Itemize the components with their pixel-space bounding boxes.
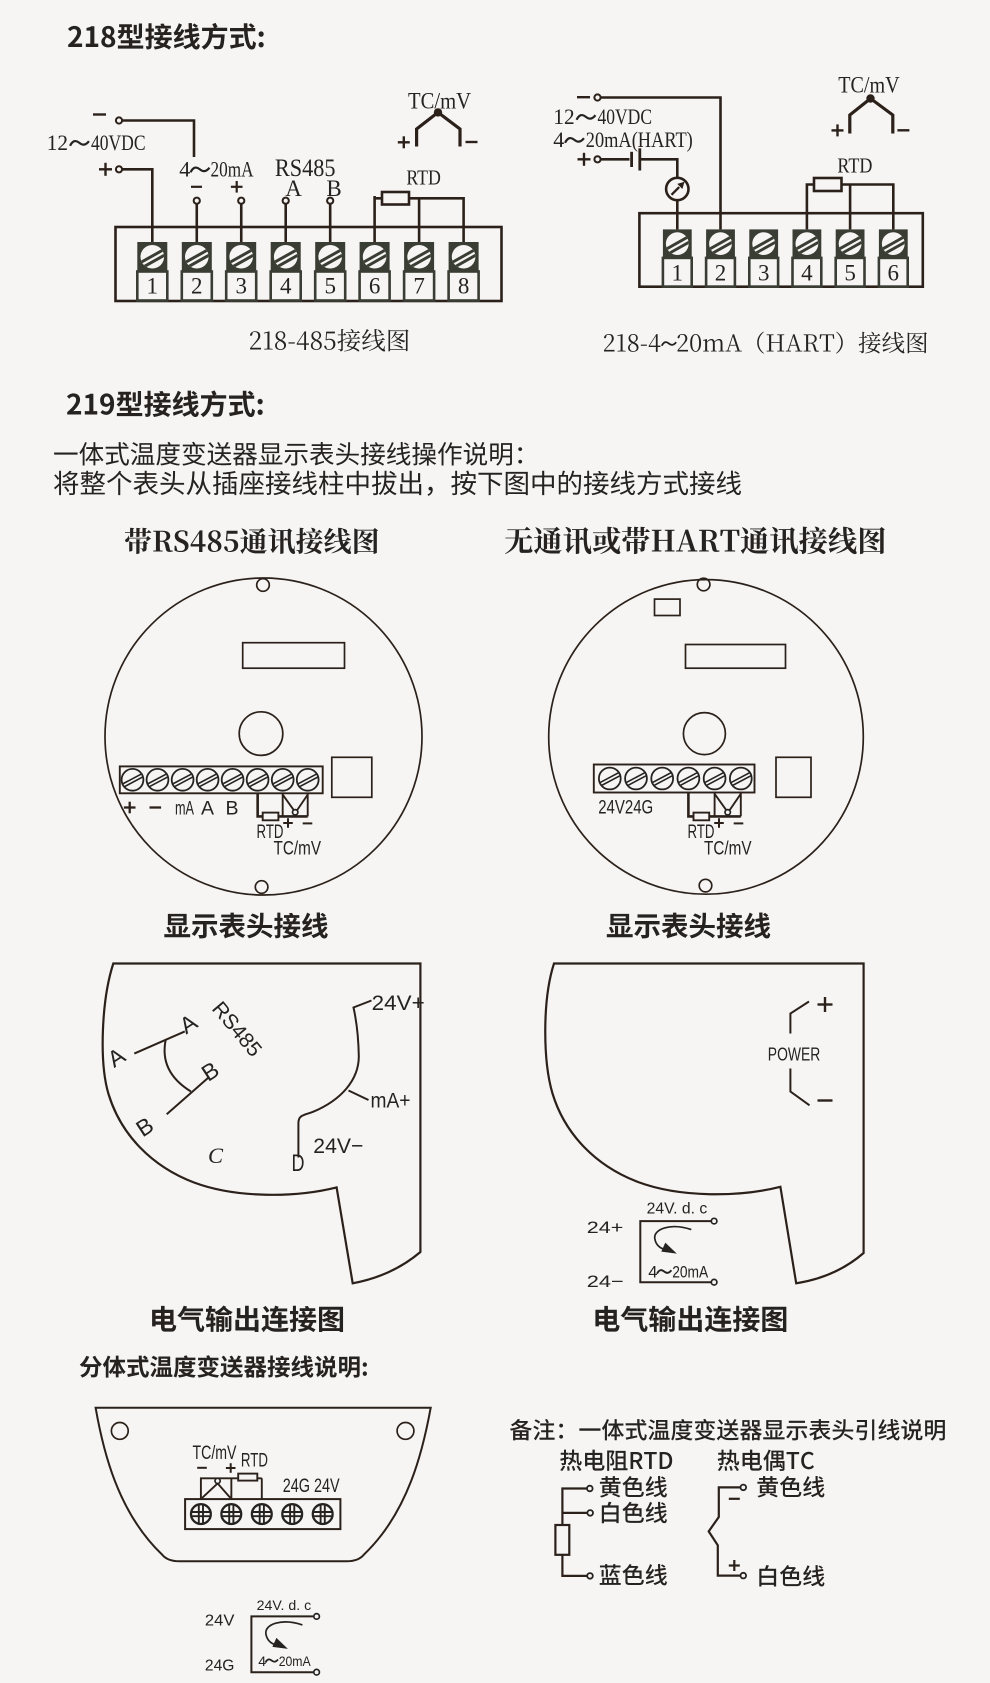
svg-text:TC/mV: TC/mV	[193, 1442, 237, 1464]
svg-text:24V: 24V	[205, 1613, 235, 1630]
svg-text:TC/mV: TC/mV	[274, 839, 322, 860]
svg-text:4: 4	[179, 157, 190, 182]
svg-text:24−: 24−	[587, 1272, 624, 1291]
svg-text:40VDC: 40VDC	[91, 130, 146, 155]
svg-text:RTD: RTD	[241, 1450, 268, 1472]
svg-text:24V24G: 24V24G	[598, 797, 653, 819]
svg-text:B: B	[225, 798, 238, 820]
svg-text:6: 6	[369, 274, 381, 299]
svg-text:2: 2	[715, 261, 727, 286]
svg-text:24V+: 24V+	[372, 991, 425, 1015]
svg-text:12: 12	[553, 104, 574, 129]
svg-text:24+: 24+	[587, 1218, 624, 1237]
svg-text:20mA: 20mA	[672, 1264, 708, 1282]
svg-text:4: 4	[801, 261, 813, 286]
svg-text:20mA: 20mA	[211, 157, 254, 182]
svg-text:2: 2	[191, 274, 203, 299]
svg-text:5: 5	[844, 261, 856, 286]
svg-text:C: C	[208, 1143, 224, 1168]
svg-text:20mA: 20mA	[279, 1653, 312, 1669]
svg-text:RS485: RS485	[207, 997, 266, 1061]
svg-text:B: B	[197, 1056, 224, 1086]
svg-text:6: 6	[888, 261, 900, 286]
svg-text:24V−: 24V−	[313, 1134, 363, 1158]
svg-text:8: 8	[458, 274, 470, 299]
svg-text:4: 4	[553, 127, 564, 152]
svg-text:mA: mA	[175, 798, 194, 820]
svg-text:RTD: RTD	[837, 154, 872, 178]
svg-text:20mA(HART): 20mA(HART)	[586, 127, 693, 152]
svg-text:A: A	[201, 798, 214, 820]
svg-text:4: 4	[258, 1653, 266, 1669]
svg-text:24G: 24G	[205, 1657, 235, 1674]
svg-text:7: 7	[413, 274, 425, 299]
svg-text:mA+: mA+	[371, 1089, 411, 1113]
svg-text:RTD: RTD	[406, 166, 441, 190]
svg-text:TC/mV: TC/mV	[838, 73, 899, 99]
svg-text:24V. d. c: 24V. d. c	[647, 1200, 708, 1217]
svg-text:3: 3	[758, 261, 770, 286]
svg-text:4: 4	[280, 274, 292, 299]
svg-text:1: 1	[147, 274, 159, 299]
svg-text:24G 24V: 24G 24V	[283, 1475, 340, 1497]
svg-text:40VDC: 40VDC	[598, 104, 653, 129]
svg-text:3: 3	[235, 274, 247, 299]
svg-text:24V. d. c: 24V. d. c	[257, 1597, 312, 1613]
svg-text:5: 5	[324, 274, 336, 299]
svg-text:1: 1	[672, 261, 684, 286]
svg-text:B: B	[131, 1112, 158, 1142]
svg-text:TC/mV: TC/mV	[704, 839, 752, 860]
svg-text:12: 12	[47, 130, 68, 155]
svg-text:A: A	[103, 1042, 131, 1073]
svg-text:4: 4	[648, 1264, 657, 1282]
svg-text:POWER: POWER	[768, 1044, 821, 1065]
